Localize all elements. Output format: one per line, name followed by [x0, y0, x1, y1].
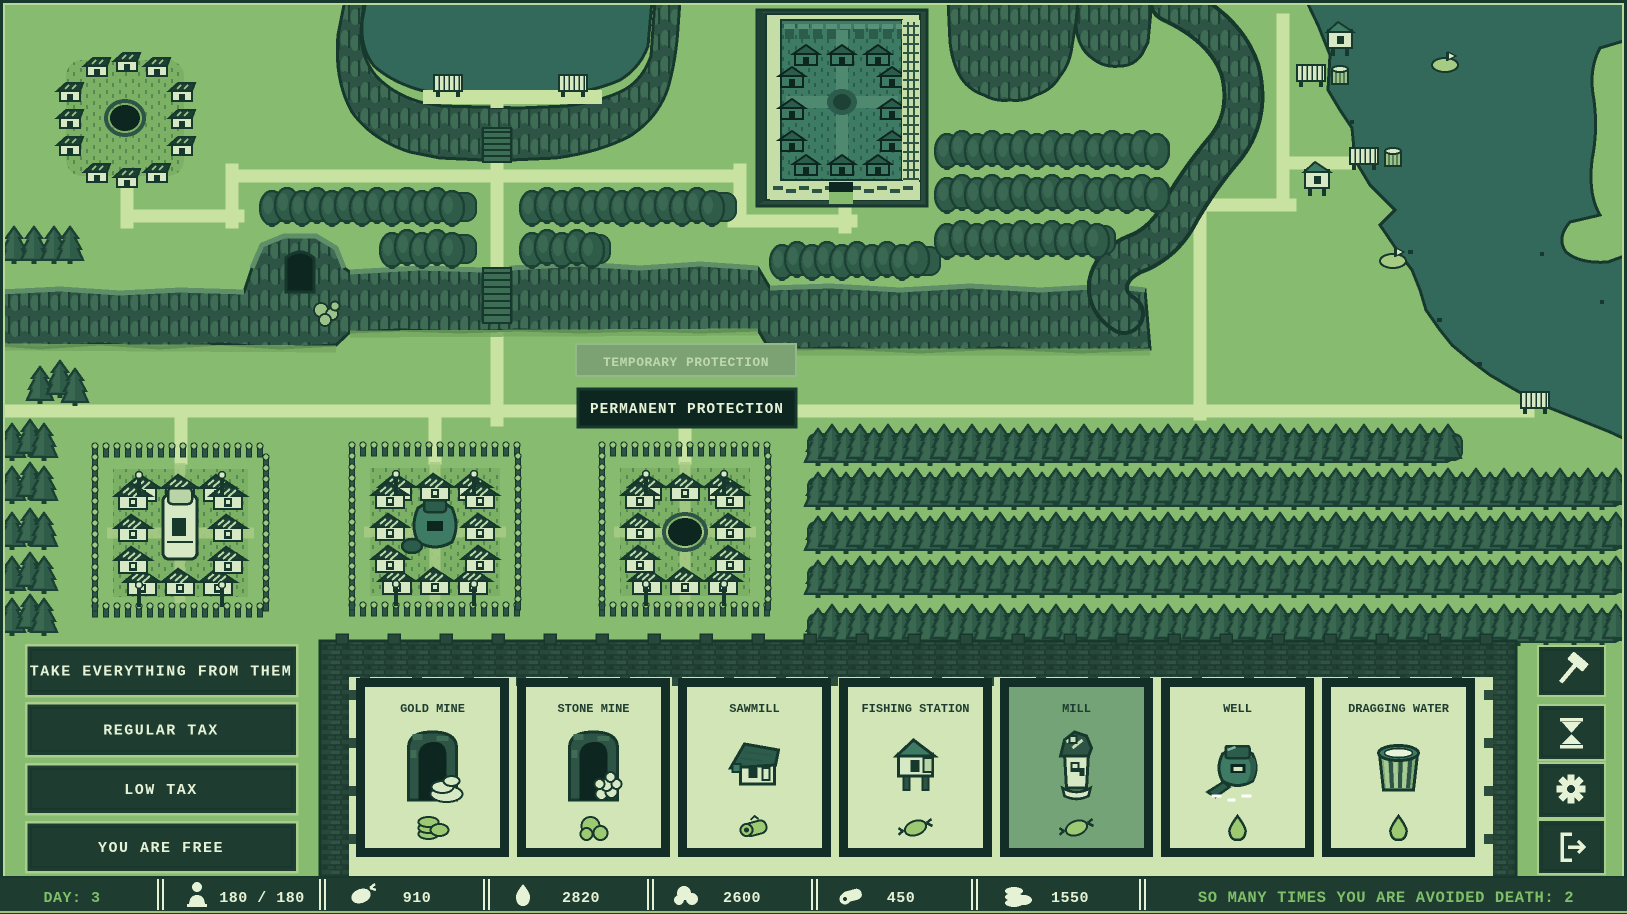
svg-text:450: 450: [887, 890, 916, 907]
svg-text:PERMANENT PROTECTION: PERMANENT PROTECTION: [590, 402, 784, 418]
svg-text:2600: 2600: [723, 890, 761, 907]
svg-text:FISHING STATION: FISHING STATION: [861, 702, 969, 716]
svg-text:YOU ARE FREE: YOU ARE FREE: [98, 840, 224, 857]
svg-text:SAWMILL: SAWMILL: [729, 702, 779, 716]
svg-text:DAY: 3: DAY: 3: [43, 890, 100, 907]
svg-text:REGULAR TAX: REGULAR TAX: [103, 723, 219, 740]
svg-text:2820: 2820: [562, 890, 600, 907]
svg-text:GOLD MINE: GOLD MINE: [400, 702, 465, 716]
svg-text:WELL: WELL: [1223, 702, 1252, 716]
svg-text:SO MANY TIMES YOU ARE AVOIDED: SO MANY TIMES YOU ARE AVOIDED DEATH: 2: [1198, 889, 1574, 907]
svg-text:DRAGGING WATER: DRAGGING WATER: [1348, 702, 1450, 716]
svg-text:STONE MINE: STONE MINE: [557, 702, 629, 716]
svg-text:180 / 180: 180 / 180: [219, 890, 305, 907]
svg-text:910: 910: [403, 890, 432, 907]
svg-text:LOW TAX: LOW TAX: [124, 782, 198, 799]
svg-text:TAKE EVERYTHING FROM THEM: TAKE EVERYTHING FROM THEM: [30, 664, 293, 681]
svg-text:1550: 1550: [1051, 890, 1089, 907]
svg-text:TEMPORARY PROTECTION: TEMPORARY PROTECTION: [603, 355, 769, 370]
svg-text:MILL: MILL: [1062, 702, 1091, 716]
